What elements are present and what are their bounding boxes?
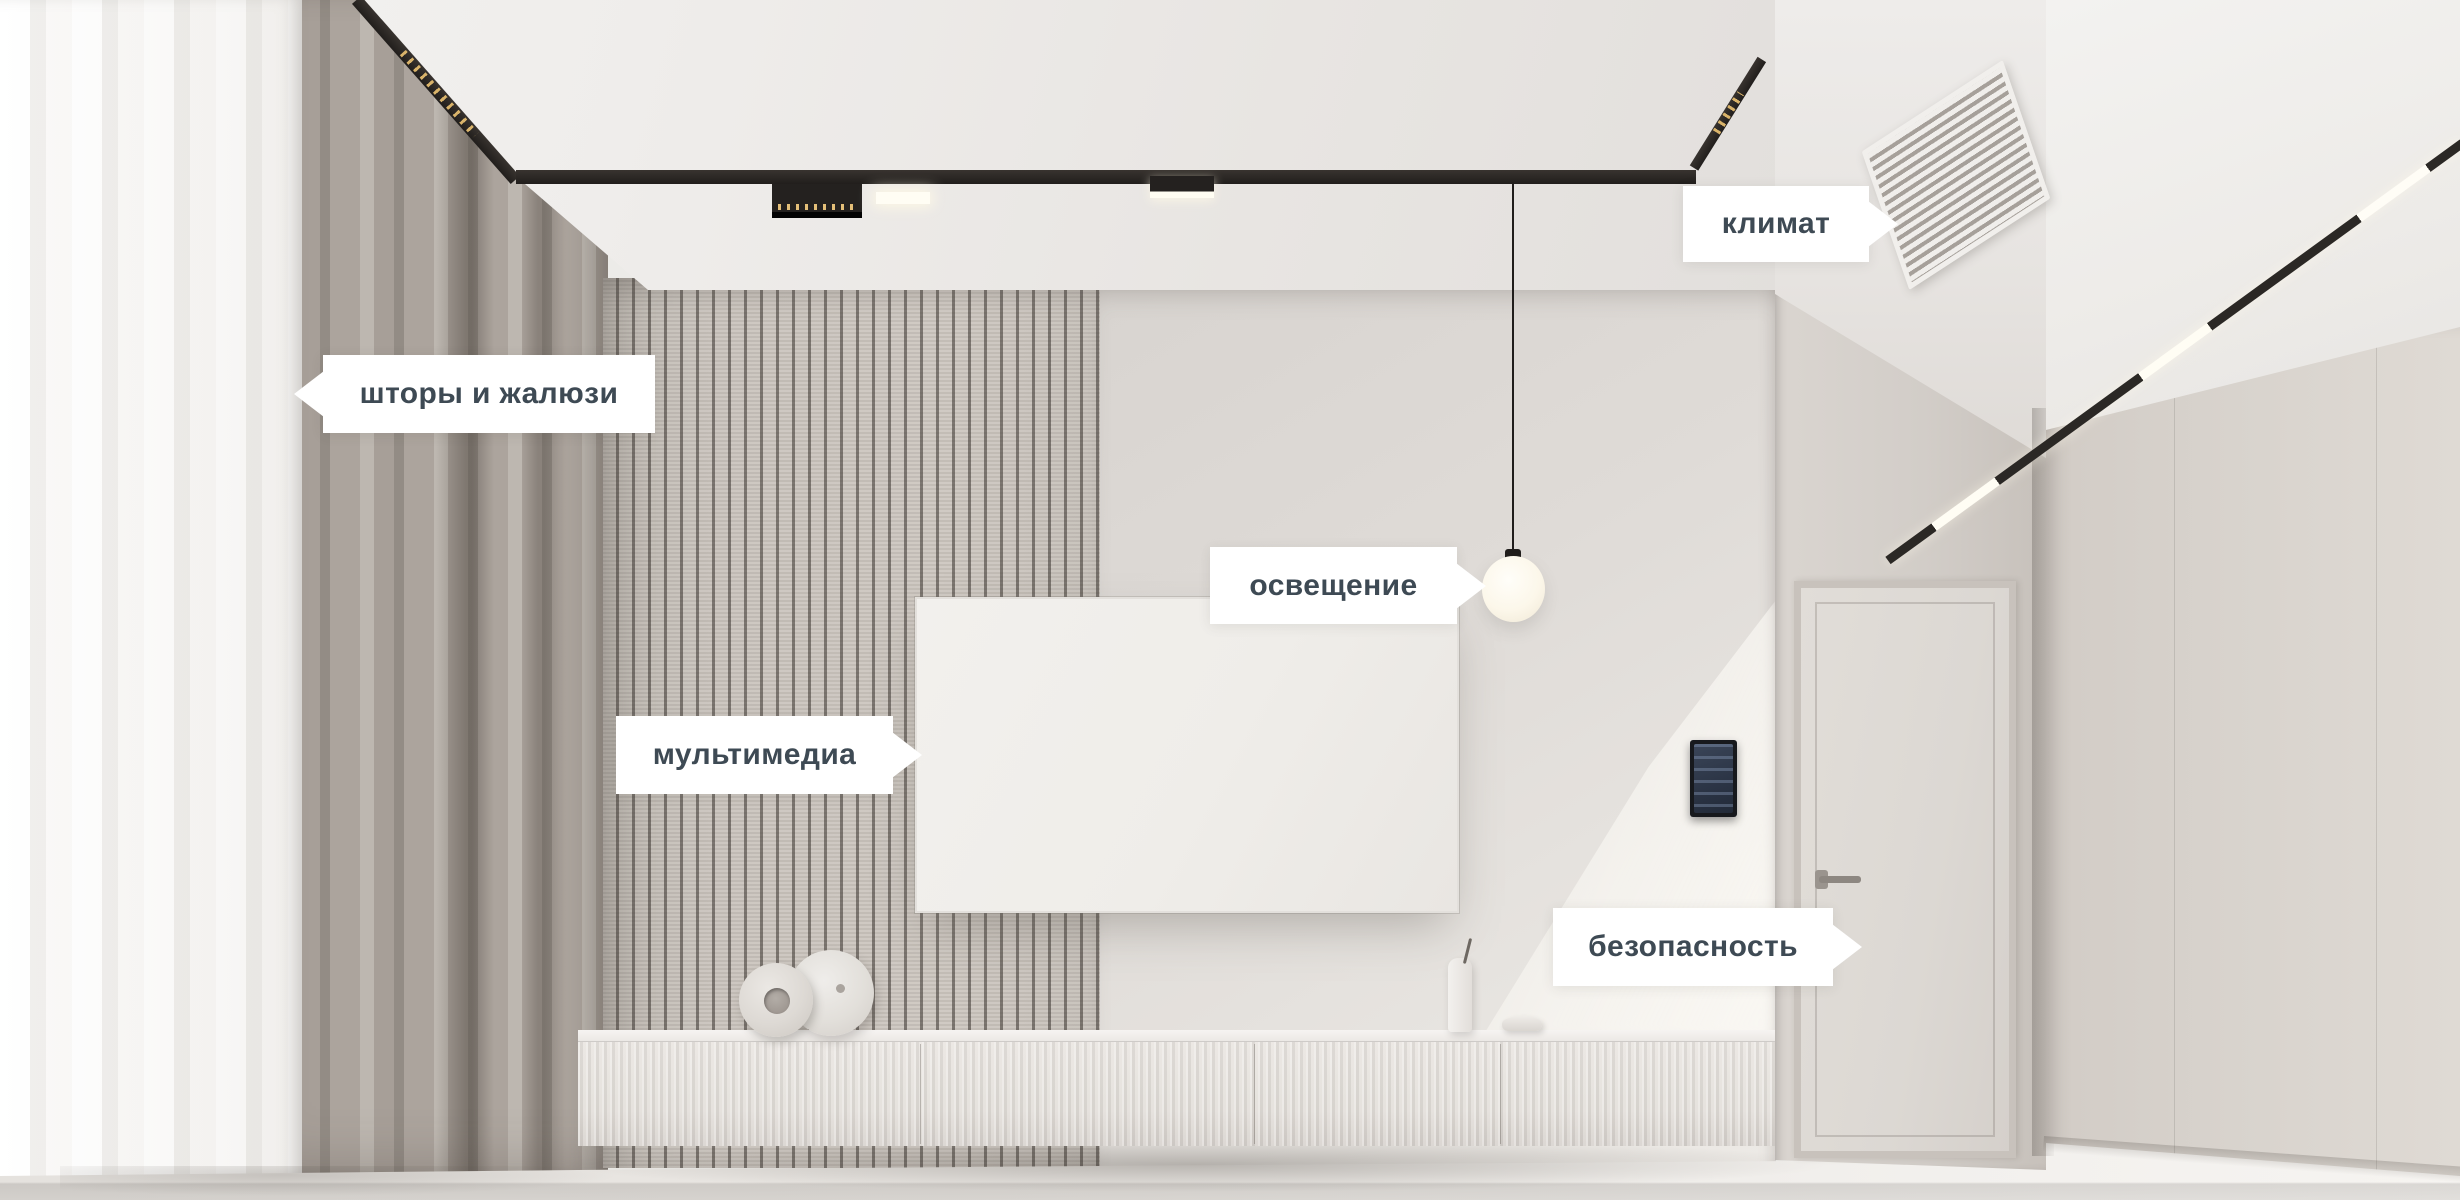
wall-control-tablet	[1690, 740, 1737, 817]
track-light-main	[516, 170, 1696, 184]
wardrobe-wall	[2046, 327, 2460, 1179]
decor-disc-hole	[764, 988, 790, 1014]
callout-climate[interactable]: климат	[1683, 186, 1869, 262]
wardrobe-seam	[2174, 327, 2175, 1179]
door	[1794, 581, 2016, 1158]
callout-arrow-right-icon	[892, 732, 922, 778]
callout-lighting[interactable]: освещение	[1210, 547, 1457, 624]
door-panel-groove	[1815, 602, 1995, 1137]
callout-curtains[interactable]: шторы и жалюзи	[323, 355, 655, 433]
door-handle	[1819, 876, 1861, 883]
pendant-cord	[1512, 182, 1514, 558]
console-door-seam	[1254, 1044, 1255, 1144]
callout-security[interactable]: безопасность	[1553, 908, 1833, 986]
track-downlight	[1150, 176, 1214, 198]
bowl	[1502, 1016, 1542, 1031]
callout-security-label: безопасность	[1588, 930, 1798, 964]
media-console	[578, 1030, 1800, 1146]
callout-arrow-left-icon	[294, 371, 324, 417]
tv-screen	[915, 597, 1459, 913]
callout-multimedia-label: мультимедиа	[653, 738, 857, 772]
curtain-shadow	[60, 1166, 620, 1196]
sheer-curtain	[0, 0, 302, 1200]
console-door-seam	[920, 1044, 921, 1144]
callout-arrow-right-icon	[1868, 201, 1898, 247]
callout-curtains-label: шторы и жалюзи	[360, 377, 619, 411]
callout-multimedia[interactable]: мультимедиа	[616, 716, 893, 794]
track-spot-module	[772, 184, 862, 218]
wardrobe-seam	[2376, 327, 2377, 1179]
callout-lighting-label: освещение	[1249, 569, 1417, 603]
console-shadow	[556, 1146, 1836, 1192]
callout-arrow-right-icon	[1832, 924, 1862, 970]
pendant-globe-lamp	[1482, 556, 1545, 622]
tablet-screen	[1694, 744, 1733, 813]
track-led-bar	[876, 192, 930, 204]
vase	[1448, 958, 1472, 1032]
console-door-seam	[1500, 1044, 1501, 1144]
callout-climate-label: климат	[1722, 207, 1830, 241]
smart-home-room-visualization: шторы и жалюзи климат освещение мультиме…	[0, 0, 2460, 1200]
callout-arrow-right-icon	[1456, 563, 1486, 609]
decor-disc-dot	[836, 984, 845, 993]
